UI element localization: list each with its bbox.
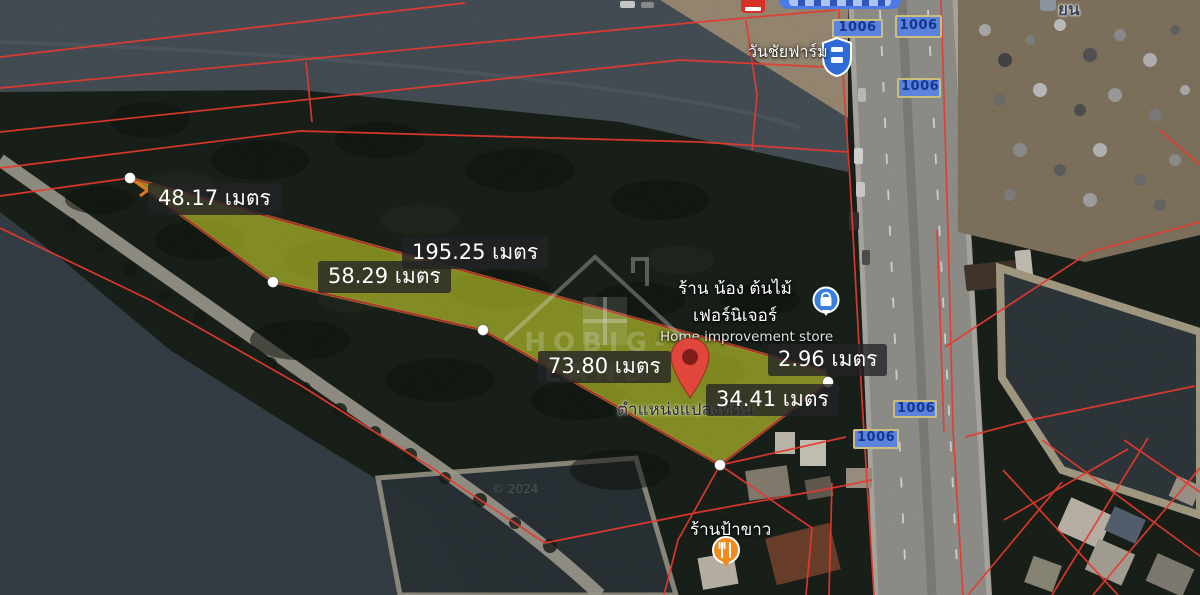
measurement-label: 34.41 เมตร: [706, 384, 839, 416]
route-badge-1006: 1006: [897, 78, 941, 98]
route-badge-1006: 1006: [895, 15, 942, 38]
satellite-map[interactable]: HOBIG-LAND © 2024 48.17 เมตร 195.25 เมตร…: [0, 0, 1200, 595]
measurement-label: 58.29 เมตร: [318, 261, 451, 293]
poi-store-mini-icon: [1040, 0, 1056, 11]
road-name-pill: [779, 0, 901, 9]
poi-label-farm[interactable]: วันชัยฟาร์ม: [748, 40, 828, 65]
poi-store-name-line2: เฟอร์นิเจอร์: [660, 302, 810, 329]
route-badge-1006: 1006: [832, 19, 883, 38]
route-badge-1006: 1006: [893, 400, 937, 418]
measurement-label: 73.80 เมตร: [538, 351, 671, 383]
route-badge-1006: 1006: [853, 429, 899, 449]
poi-red-icon: [741, 0, 765, 13]
location-pin-icon[interactable]: [667, 336, 713, 400]
poi-label-partial[interactable]: ยน: [1058, 0, 1080, 23]
map-attribution: © 2024: [492, 482, 538, 496]
shopping-store-icon[interactable]: [811, 286, 841, 322]
measurement-label: 2.96 เมตร: [768, 344, 887, 376]
measurement-label: 48.17 เมตร: [148, 183, 281, 215]
restaurant-icon[interactable]: [710, 535, 742, 573]
poi-label-store[interactable]: ร้าน น้อง ต้นไม้ เฟอร์นิเจอร์ Home impro…: [660, 275, 810, 345]
poi-store-name-line1: ร้าน น้อง ต้นไม้: [660, 275, 810, 302]
